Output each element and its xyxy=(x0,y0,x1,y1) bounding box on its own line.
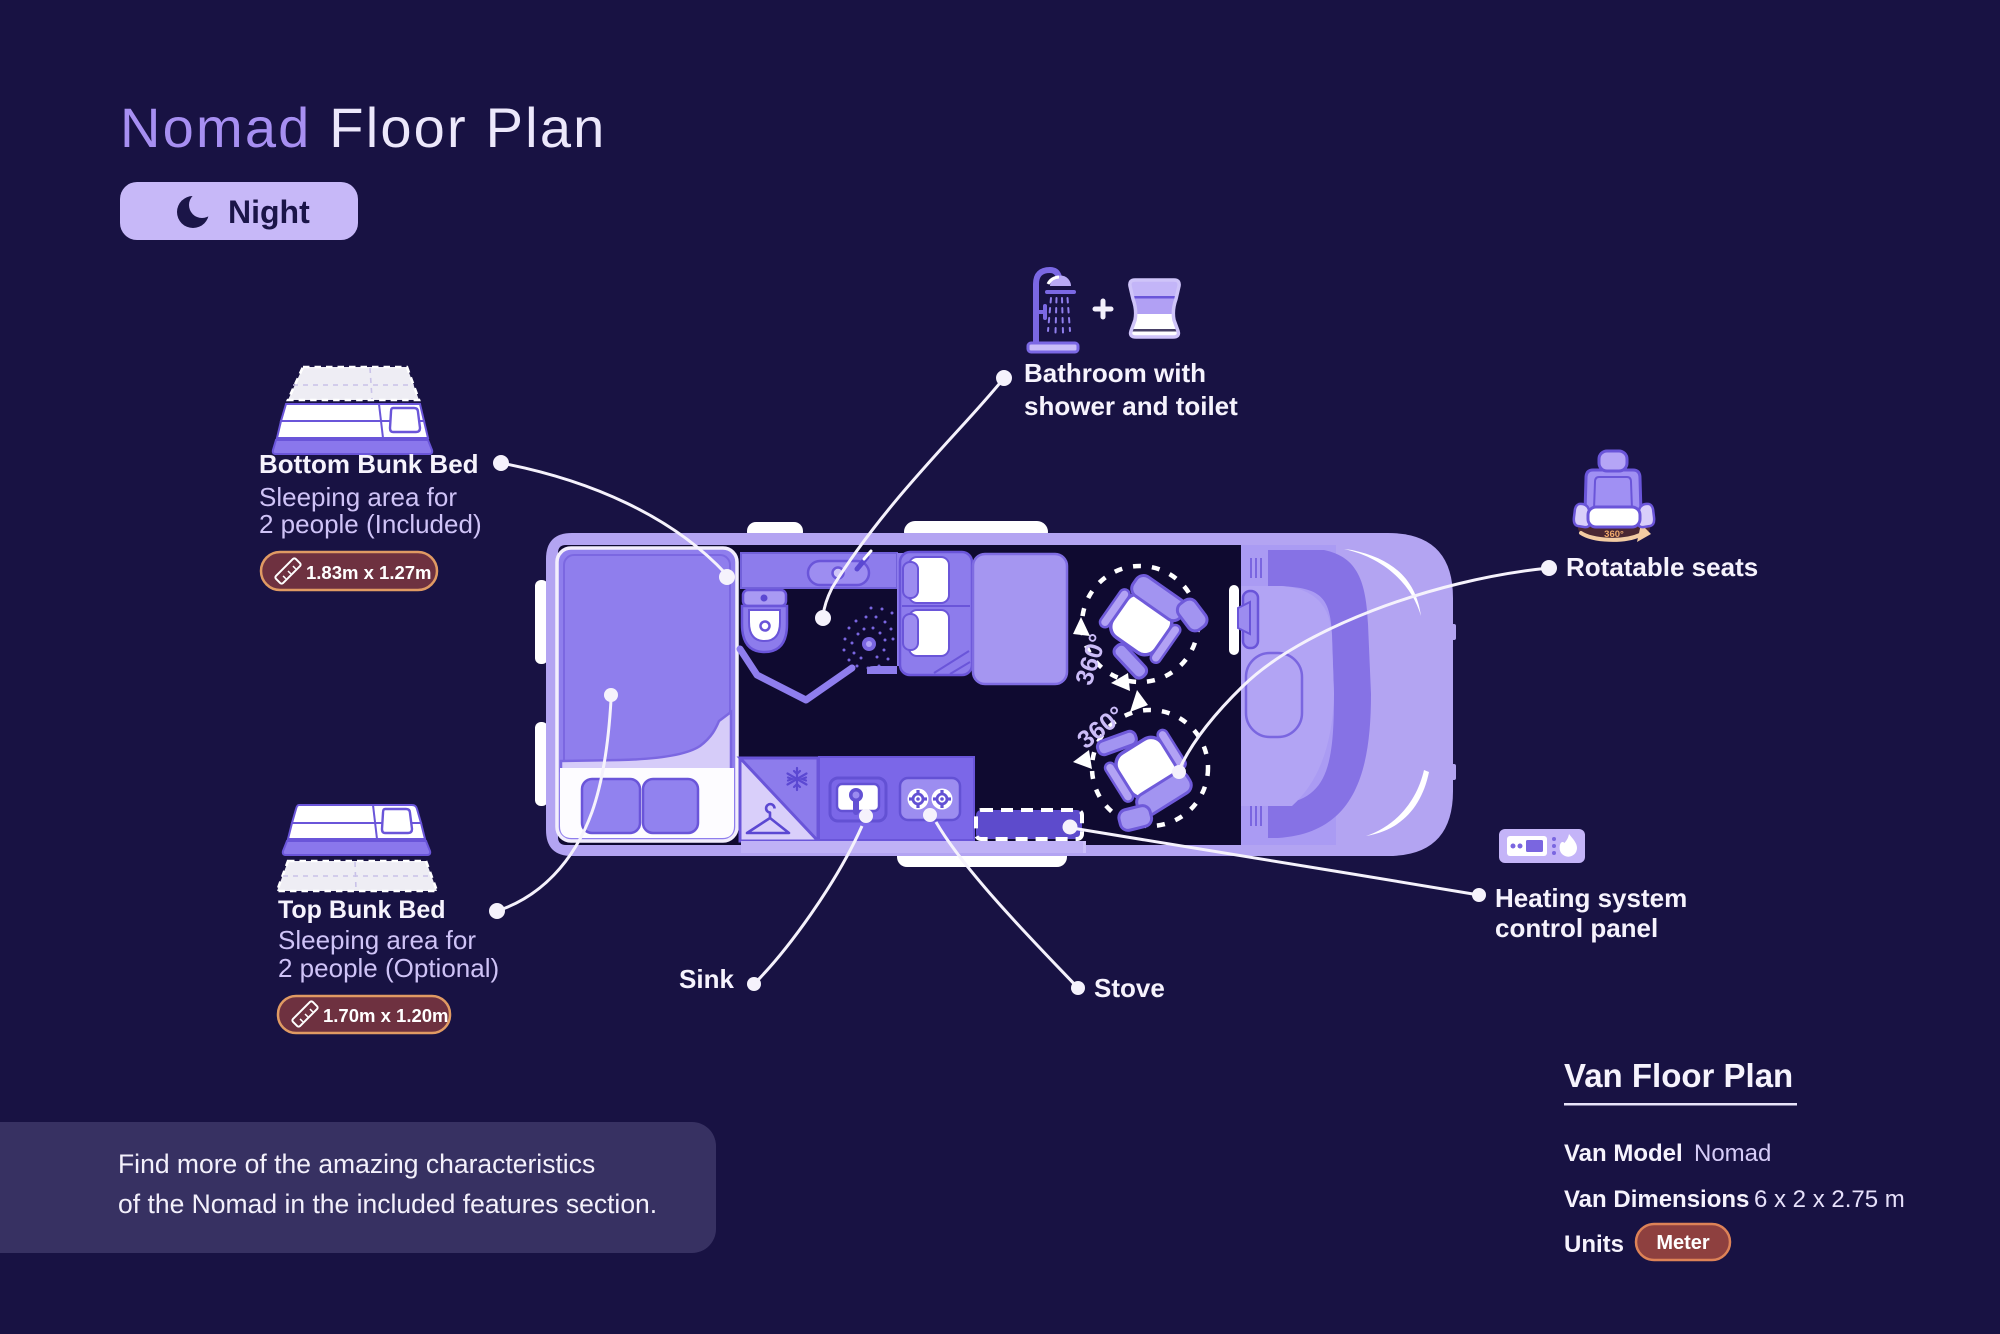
svg-text:360°: 360° xyxy=(1604,529,1624,540)
svg-text:Sink: Sink xyxy=(679,964,734,994)
svg-text:Van Model: Van Model xyxy=(1564,1140,1683,1167)
svg-text:1.83m x 1.27m: 1.83m x 1.27m xyxy=(306,562,431,583)
svg-text:shower and toilet: shower and toilet xyxy=(1024,391,1238,421)
svg-text:Units: Units xyxy=(1564,1231,1624,1258)
svg-text:of the Nomad in the included f: of the Nomad in the included features se… xyxy=(118,1189,657,1219)
svg-text:Sleeping area for: Sleeping area for xyxy=(259,482,457,512)
svg-text:1.70m x 1.20m: 1.70m x 1.20m xyxy=(323,1005,448,1026)
svg-text:2 people (Optional): 2 people (Optional) xyxy=(278,953,499,983)
svg-text:Nomad: Nomad xyxy=(1694,1140,1771,1167)
svg-text:Nomad Floor Plan: Nomad Floor Plan xyxy=(120,96,607,159)
svg-text:Night: Night xyxy=(228,194,310,230)
svg-text:Top Bunk Bed: Top Bunk Bed xyxy=(278,896,446,924)
svg-text:Bottom Bunk Bed: Bottom Bunk Bed xyxy=(259,449,479,479)
svg-text:Van Dimensions: Van Dimensions xyxy=(1564,1186,1749,1213)
svg-text:Rotatable seats: Rotatable seats xyxy=(1566,552,1758,582)
svg-text:Heating system: Heating system xyxy=(1495,883,1687,913)
svg-text:6 x 2 x 2.75 m: 6 x 2 x 2.75 m xyxy=(1754,1186,1905,1213)
svg-text:Bathroom with: Bathroom with xyxy=(1024,358,1206,388)
svg-text:Stove: Stove xyxy=(1094,973,1165,1003)
svg-text:control panel: control panel xyxy=(1495,913,1658,943)
svg-text:Van Floor Plan: Van Floor Plan xyxy=(1564,1057,1793,1094)
svg-text:Sleeping area for: Sleeping area for xyxy=(278,925,476,955)
svg-text:Find more of the amazing chara: Find more of the amazing characteristics xyxy=(118,1149,595,1179)
svg-text:2 people (Included): 2 people (Included) xyxy=(259,509,482,539)
svg-text:Meter: Meter xyxy=(1656,1232,1710,1254)
